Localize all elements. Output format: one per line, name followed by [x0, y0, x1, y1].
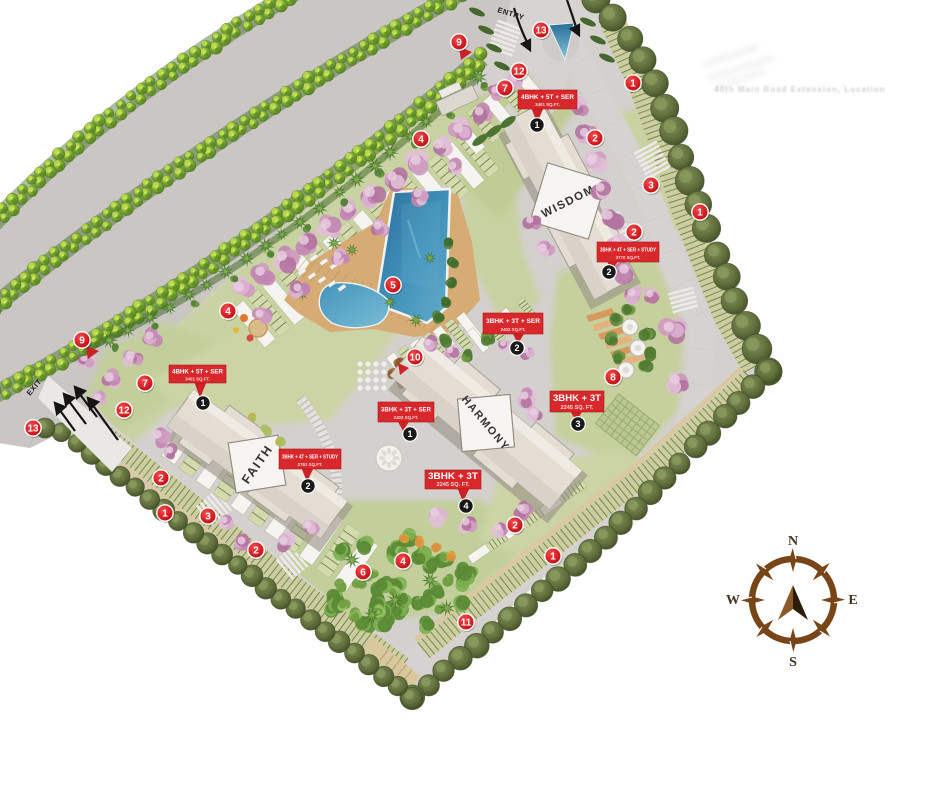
svg-text:3: 3 — [648, 180, 654, 191]
svg-text:9: 9 — [456, 37, 462, 48]
svg-text:N: N — [788, 534, 798, 549]
svg-text:2: 2 — [253, 545, 259, 556]
svg-text:4: 4 — [225, 306, 231, 317]
svg-text:1: 1 — [200, 398, 205, 408]
svg-text:7: 7 — [142, 378, 148, 389]
svg-text:1: 1 — [550, 551, 556, 562]
svg-text:2245 SQ. FT.: 2245 SQ. FT. — [437, 482, 470, 488]
svg-text:2: 2 — [631, 227, 637, 238]
svg-text:7: 7 — [502, 83, 508, 94]
svg-text:5: 5 — [390, 280, 396, 291]
svg-text:1: 1 — [162, 508, 168, 519]
svg-text:2245 SQ. FT.: 2245 SQ. FT. — [561, 405, 594, 411]
svg-text:4: 4 — [400, 556, 406, 567]
svg-text:4: 4 — [463, 501, 468, 511]
svg-text:12: 12 — [118, 405, 130, 416]
svg-text:2: 2 — [158, 473, 164, 484]
svg-text:2: 2 — [592, 133, 598, 144]
svg-text:3BHK + 3T + SER: 3BHK + 3T + SER — [486, 318, 540, 325]
svg-text:6: 6 — [360, 567, 366, 578]
svg-text:13: 13 — [27, 423, 39, 434]
svg-text:3770 SQ.FT.: 3770 SQ.FT. — [616, 255, 641, 260]
svg-text:4: 4 — [418, 134, 424, 145]
svg-text:8: 8 — [610, 372, 616, 383]
svg-text:4BHK + 5T + SER: 4BHK + 5T + SER — [521, 94, 574, 101]
svg-text:11: 11 — [461, 617, 472, 628]
svg-text:2402 SQ.FT.: 2402 SQ.FT. — [394, 415, 419, 420]
svg-text:3: 3 — [205, 511, 211, 522]
svg-text:3BHK + 3T: 3BHK + 3T — [428, 471, 478, 482]
svg-text:9: 9 — [79, 335, 85, 346]
svg-text:S: S — [789, 655, 797, 670]
svg-text:1: 1 — [697, 207, 703, 218]
svg-text:4BHK + 5T + SER: 4BHK + 5T + SER — [172, 368, 223, 375]
svg-text:40th Main Road Extension, Loca: 40th Main Road Extension, Location — [714, 85, 885, 94]
svg-text:1: 1 — [534, 120, 539, 130]
svg-text:2: 2 — [305, 481, 310, 491]
svg-text:3: 3 — [575, 419, 580, 429]
svg-text:2: 2 — [512, 520, 518, 531]
svg-text:2402 SQ.FT.: 2402 SQ.FT. — [501, 327, 526, 332]
svg-text:3BHK + 3T + SER: 3BHK + 3T + SER — [381, 406, 431, 413]
svg-text:E: E — [848, 593, 857, 608]
svg-text:1: 1 — [630, 78, 636, 89]
svg-text:1: 1 — [407, 429, 412, 439]
svg-text:12: 12 — [513, 66, 525, 77]
svg-text:W: W — [726, 593, 740, 608]
svg-text:10: 10 — [409, 352, 421, 363]
svg-text:2: 2 — [514, 343, 519, 353]
svg-text:13: 13 — [535, 25, 547, 36]
svg-text:3BHK + 3T: 3BHK + 3T — [553, 393, 601, 404]
svg-text:3401 SQ.FT.: 3401 SQ.FT. — [185, 376, 210, 381]
svg-text:3401 SQ.FT.: 3401 SQ.FT. — [535, 102, 560, 107]
svg-text:3BHK + 4T + SER + STUDY: 3BHK + 4T + SER + STUDY — [600, 247, 656, 253]
svg-text:3BHK + 4T + SER + STUDY: 3BHK + 4T + SER + STUDY — [282, 454, 338, 460]
svg-text:2: 2 — [606, 267, 611, 277]
svg-text:2761 SQ.FT.: 2761 SQ.FT. — [298, 462, 323, 467]
